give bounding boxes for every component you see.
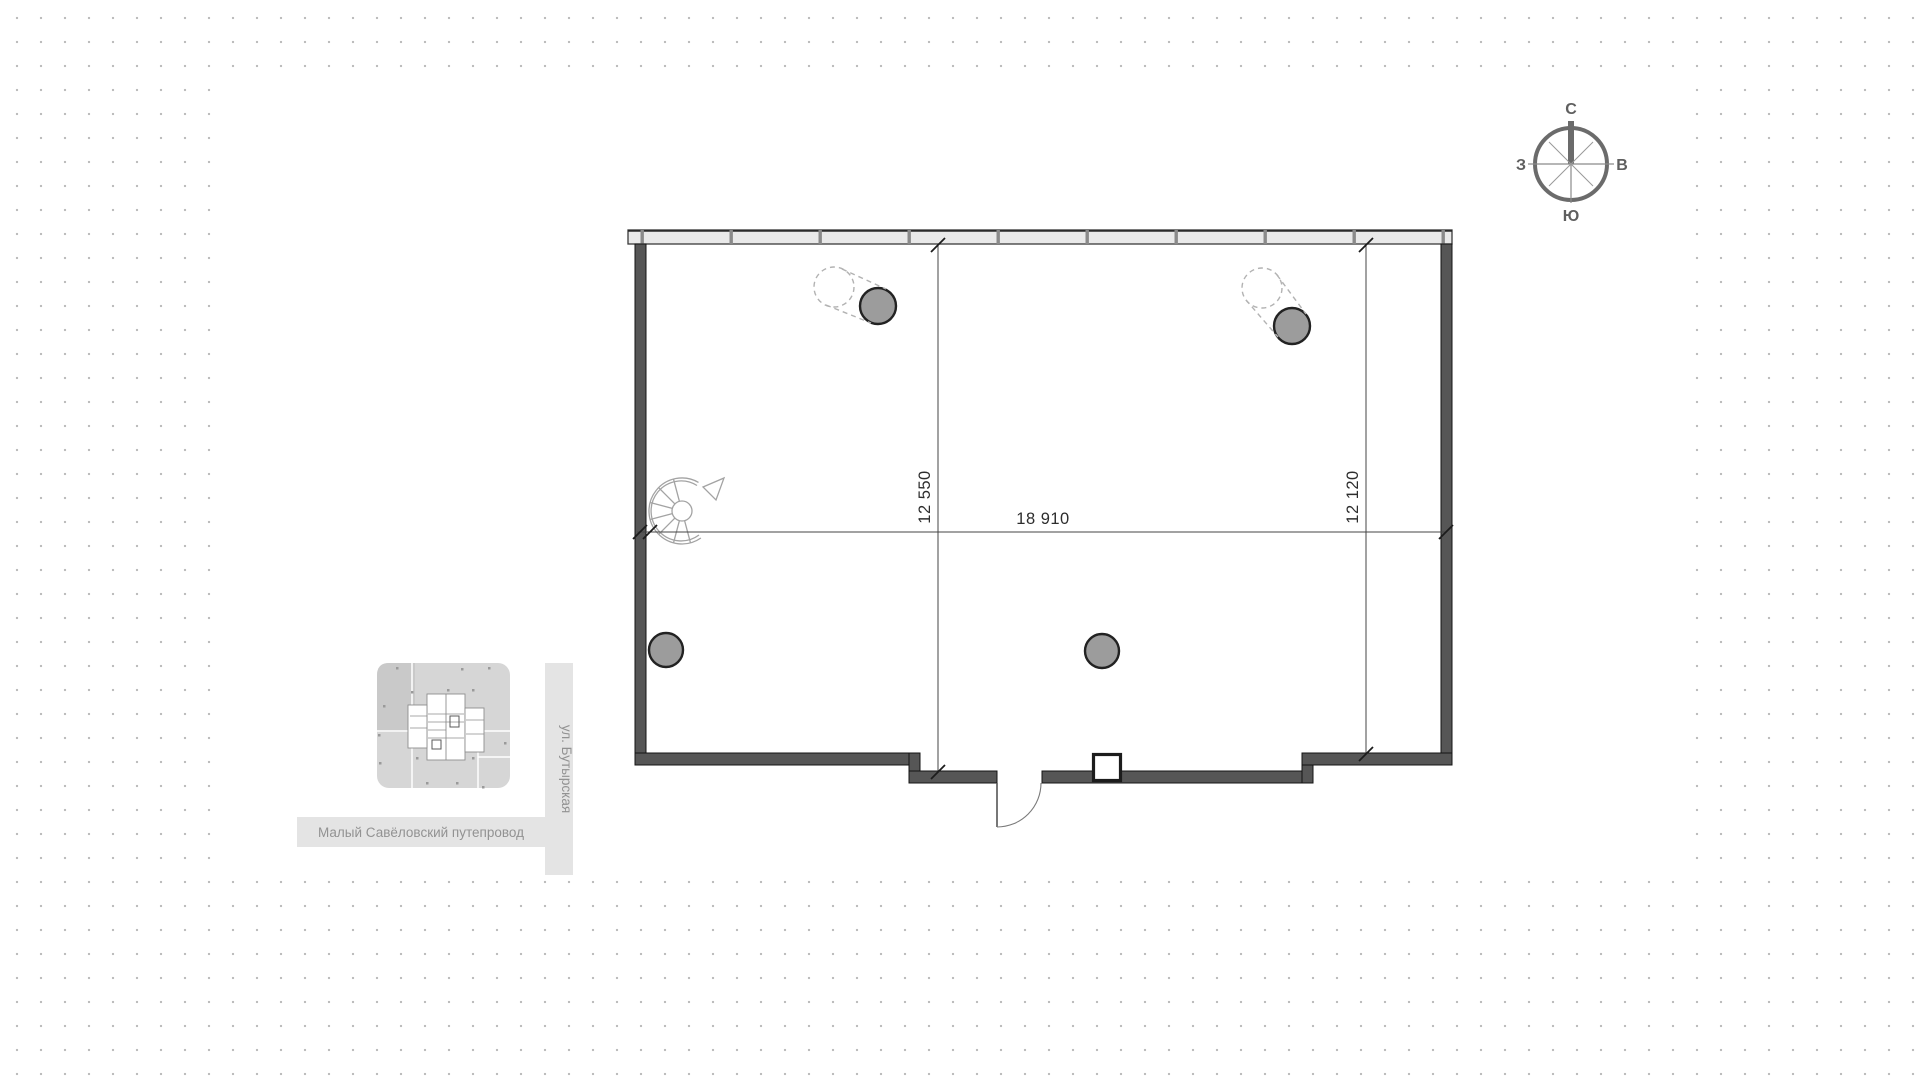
compass-label-west: З [1516,157,1526,174]
street-label-horizontal: Малый Савёловский путепровод [318,825,524,840]
stair-tread-line [659,488,675,504]
mullion-tick [1264,230,1267,244]
compass-label-south: Ю [1563,208,1580,225]
ghost-column-circle [814,267,854,307]
stair-tread-line [674,479,680,501]
curtain-wall-band [628,230,1452,244]
dimensions: 18 910 12 550 12 120 [633,238,1453,779]
dim-label-width: 18 910 [1016,510,1069,528]
minimap-dot [416,757,419,760]
wall-lower-right [1042,771,1313,783]
mullion-tick [819,230,822,244]
spiral-staircase [649,478,724,544]
ghost-tangent-line [842,269,886,289]
stair-center-circle [672,501,692,521]
mullion-tick [730,230,733,244]
mullion-tick [1442,230,1445,244]
wall-bottom-right [1302,753,1452,765]
minimap-dot [447,689,450,692]
stair-tread-line [650,514,672,520]
door-swing-arc [997,783,1041,827]
compass-label-east: В [1616,157,1628,174]
mullion-tick [1175,230,1178,244]
minimap-dot [426,782,429,785]
compass-rose: С Ю З В [1516,101,1628,225]
column [860,288,896,324]
wall-left [635,244,646,765]
mullion-tick [1086,230,1089,244]
minimap-dot [504,742,507,745]
minimap-dot [411,691,414,694]
minimap-dot [482,786,485,789]
ghost-tangent-line [1246,300,1278,337]
wall-lower-left [909,771,997,783]
minimap-dot [488,667,491,670]
minimap-dot [461,668,464,671]
minimap-dot [378,734,381,737]
wall-pilaster [1094,755,1121,781]
entrance-door [997,783,1041,827]
compass-label-north: С [1565,101,1577,118]
minimap-dot [456,782,459,785]
minimap-dot [472,689,475,692]
floor-plan-drawing: 18 910 12 550 12 120 С Ю З В [0,0,1920,1078]
core-plan-left-wing [408,705,427,748]
minimap-dot [472,757,475,760]
wall-right [1441,244,1452,765]
street-label-vertical: ул. Бутырская [559,725,574,813]
stair-outer-arc [649,478,701,544]
mullion-tick [997,230,1000,244]
mullion-tick [908,230,911,244]
stair-direction-arrow [703,478,724,500]
core-plan-right-wing [465,708,484,752]
mullion-tick [641,230,644,244]
columns [649,288,1310,668]
minimap-dot [396,667,399,670]
mullion-tick [1353,230,1356,244]
column [649,633,683,667]
location-minimap: ул. Бутырская Малый Савёловский путепров… [297,663,574,875]
column [1085,634,1119,668]
dim-label-left-height: 12 550 [916,470,934,523]
floor-plan: 18 910 12 550 12 120 [628,230,1453,827]
minimap-dot [379,762,382,765]
wall-bottom-left [635,753,920,765]
dim-label-right-height: 12 120 [1344,470,1362,523]
stair-treads [650,479,690,543]
column [1274,308,1310,344]
minimap-dot [383,705,386,708]
stair-tread-line [650,503,672,509]
